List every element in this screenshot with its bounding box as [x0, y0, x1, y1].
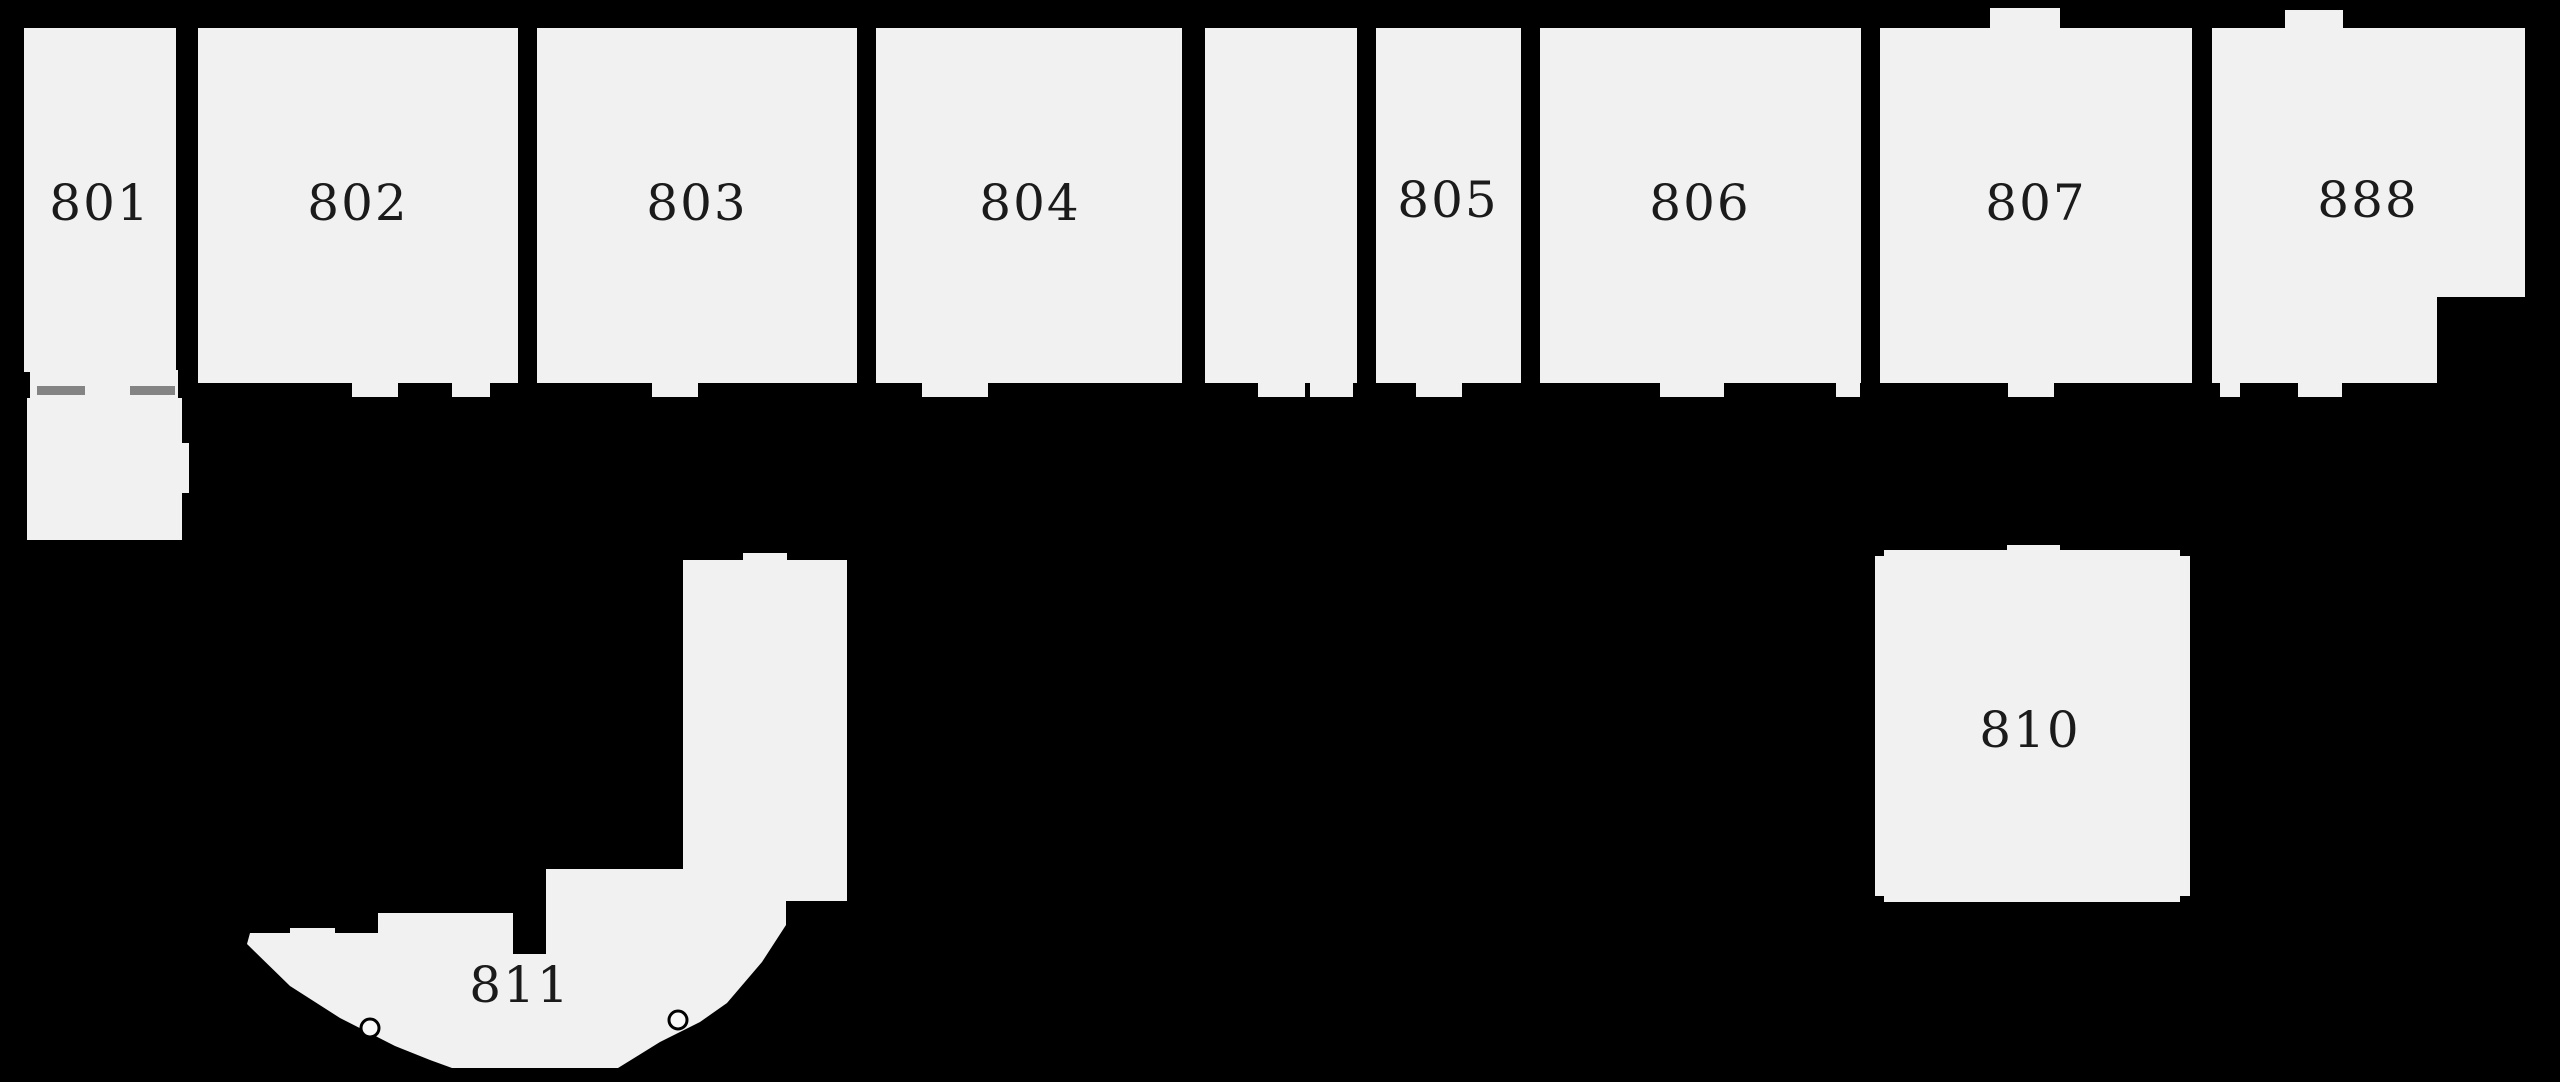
door-opening — [2220, 378, 2240, 397]
room-label-888: 888 — [2317, 171, 2418, 229]
door-opening — [1836, 378, 1860, 397]
room-label-802: 802 — [307, 174, 408, 232]
door-opening — [2298, 378, 2342, 397]
door-opening — [1416, 378, 1462, 397]
room-label-803: 803 — [646, 174, 747, 232]
door-opening — [922, 378, 988, 397]
room-label-805: 805 — [1397, 171, 1498, 229]
top-door-tab — [1990, 8, 2060, 32]
door-opening — [1258, 378, 1305, 397]
room-label-811: 811 — [469, 956, 570, 1014]
door-swing-dash — [37, 386, 85, 395]
room-label-807: 807 — [1985, 174, 2086, 232]
door-opening — [652, 378, 698, 397]
room-label-810: 810 — [1979, 701, 2080, 759]
room-label-804: 804 — [979, 174, 1080, 232]
floor-plan: 801802803804805806807888810811 — [0, 0, 2560, 1082]
door-knob — [669, 1011, 687, 1029]
door-opening — [452, 378, 490, 397]
door-knob — [361, 1019, 379, 1037]
door-opening — [1660, 378, 1724, 397]
door-opening — [1310, 378, 1353, 397]
door-opening — [2008, 378, 2054, 397]
room-801-annex — [27, 398, 189, 540]
door-swing-dash — [130, 386, 175, 395]
top-door-tab — [2285, 10, 2343, 32]
room-label-801: 801 — [49, 174, 150, 232]
floor-plan-svg: 801802803804805806807888810811 — [0, 0, 2560, 1082]
door-opening — [352, 378, 398, 397]
room-label-806: 806 — [1649, 174, 1750, 232]
room-unlabeled — [1205, 28, 1357, 383]
